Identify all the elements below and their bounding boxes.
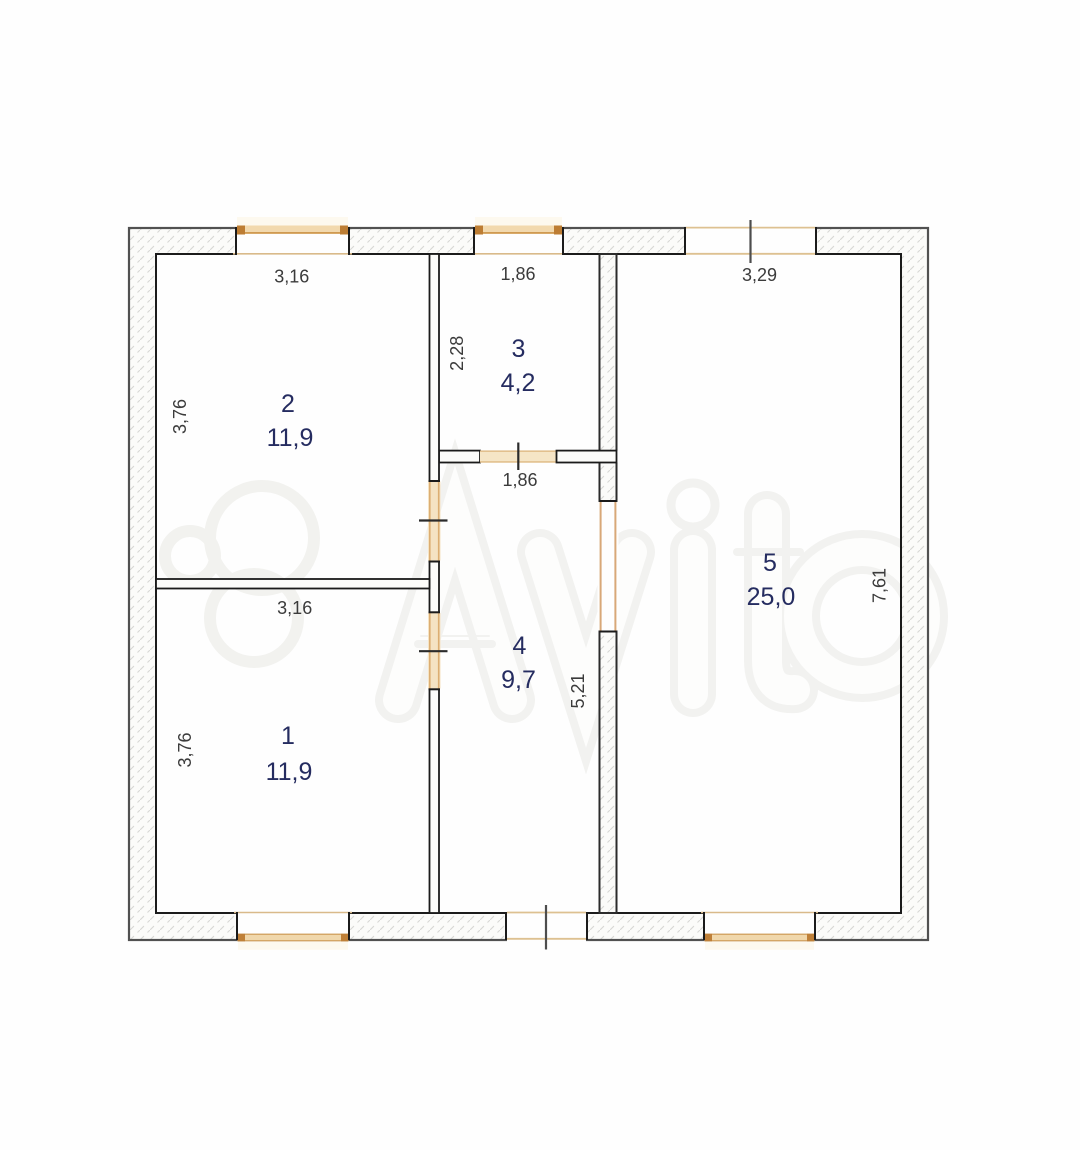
svg-text:11,9: 11,9 <box>266 758 313 786</box>
svg-text:4,2: 4,2 <box>501 369 536 397</box>
svg-text:5: 5 <box>763 549 777 577</box>
svg-text:3,76: 3,76 <box>175 732 195 767</box>
svg-text:3,29: 3,29 <box>742 265 777 285</box>
svg-text:3,16: 3,16 <box>277 598 312 618</box>
svg-text:25,0: 25,0 <box>747 583 796 611</box>
svg-text:1,86: 1,86 <box>502 470 537 490</box>
svg-text:7,61: 7,61 <box>870 568 890 603</box>
svg-text:1,86: 1,86 <box>500 264 535 284</box>
svg-text:9,7: 9,7 <box>501 666 536 694</box>
svg-text:2,28: 2,28 <box>447 336 467 371</box>
svg-text:3: 3 <box>512 335 526 363</box>
svg-text:5,21: 5,21 <box>568 673 588 708</box>
svg-text:4: 4 <box>513 632 527 660</box>
svg-text:2: 2 <box>281 390 295 418</box>
svg-text:3,76: 3,76 <box>170 399 190 434</box>
svg-text:3,16: 3,16 <box>274 267 309 287</box>
svg-text:1: 1 <box>281 722 295 750</box>
svg-text:11,9: 11,9 <box>267 424 314 452</box>
